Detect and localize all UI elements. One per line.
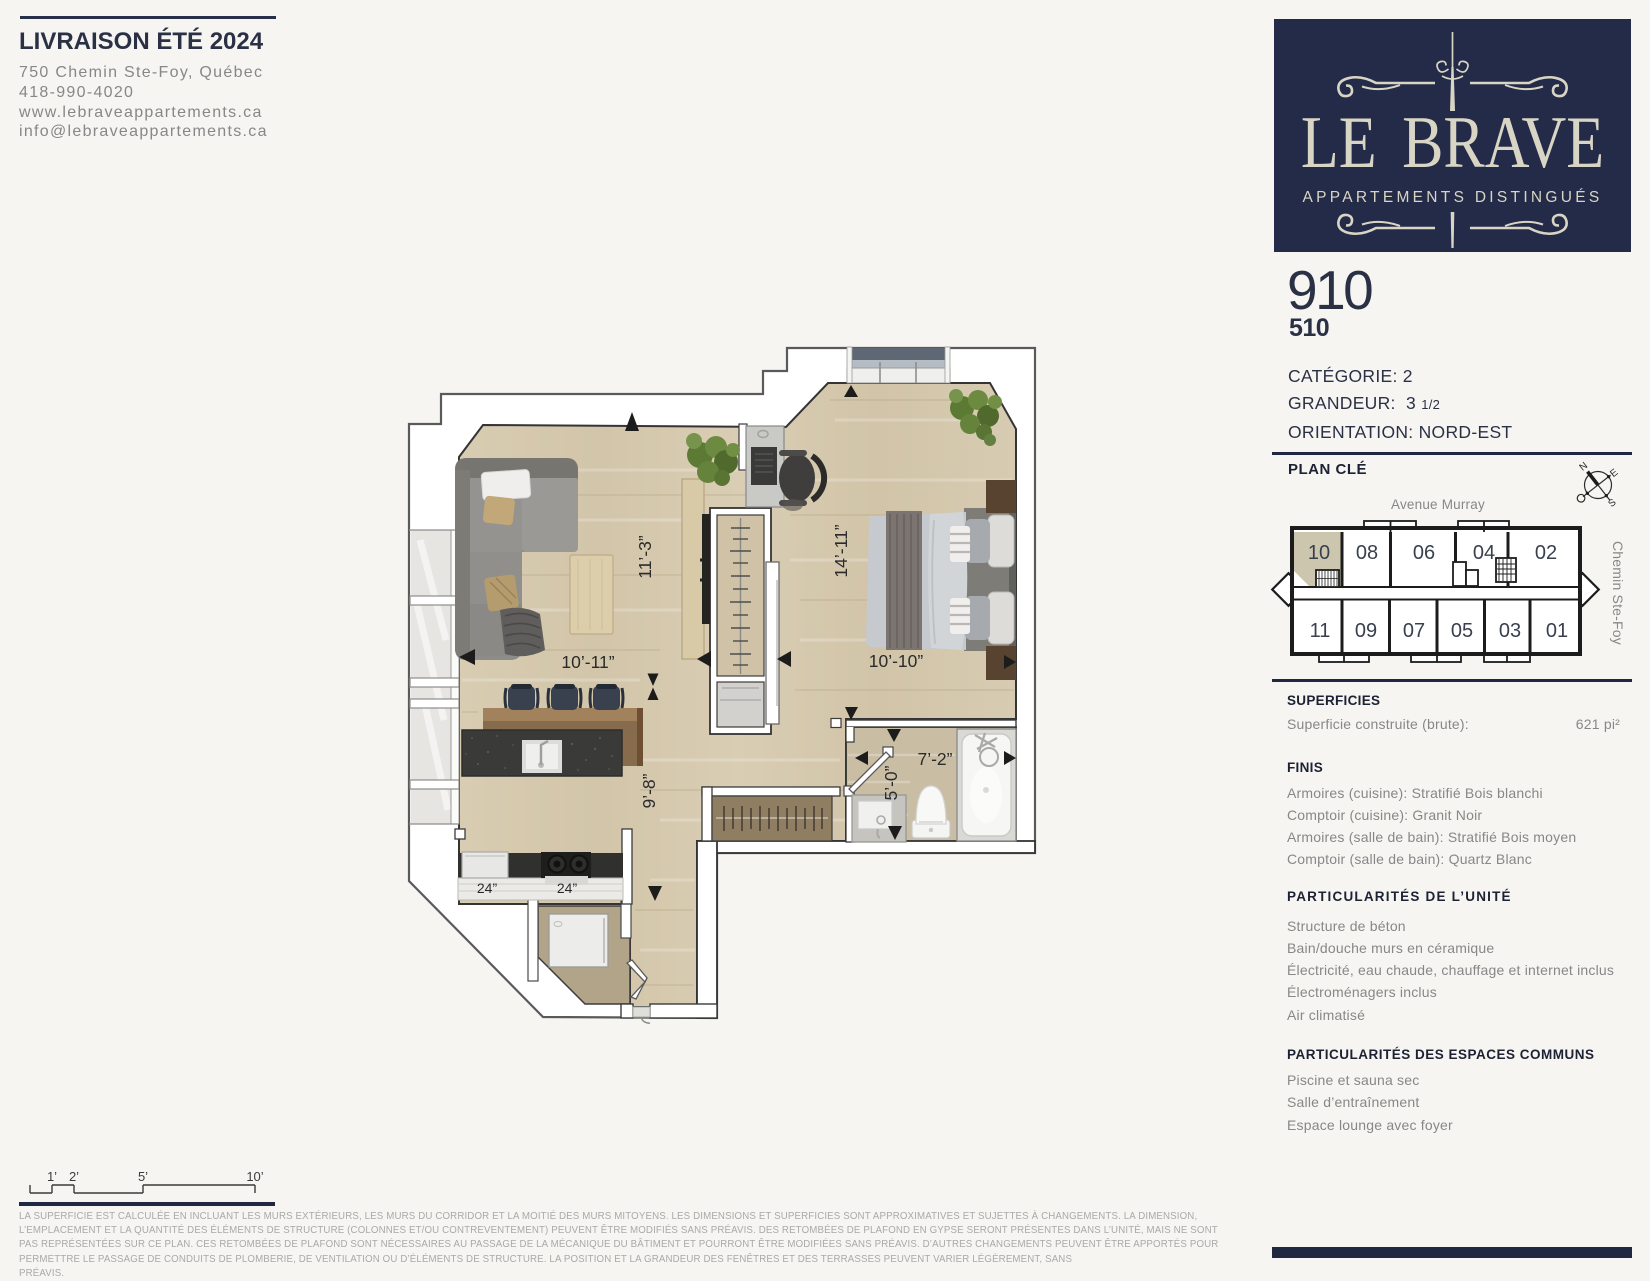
svg-text:7’-2”: 7’-2” <box>917 749 952 769</box>
svg-text:07: 07 <box>1403 620 1425 642</box>
svg-text:11: 11 <box>1310 620 1331 642</box>
svg-text:02: 02 <box>1535 542 1557 564</box>
svg-text:24”: 24” <box>557 880 578 896</box>
svg-text:E: E <box>1608 467 1620 480</box>
svg-text:01: 01 <box>1546 620 1568 642</box>
svg-text:S: S <box>1606 497 1618 510</box>
svg-text:06: 06 <box>1413 542 1435 564</box>
svg-text:10: 10 <box>1308 542 1330 564</box>
svg-text:03: 03 <box>1499 620 1521 642</box>
svg-text:10’-11”: 10’-11” <box>561 652 614 672</box>
svg-text:5’-0”: 5’-0” <box>881 765 901 800</box>
svg-text:05: 05 <box>1451 620 1473 642</box>
svg-text:9’-8”: 9’-8” <box>639 773 659 808</box>
svg-text:2’: 2’ <box>69 1169 79 1184</box>
svg-text:10’-10”: 10’-10” <box>869 651 924 671</box>
svg-text:24”: 24” <box>477 880 498 896</box>
svg-text:10’: 10’ <box>246 1169 263 1184</box>
svg-text:08: 08 <box>1356 542 1378 564</box>
svg-text:1’: 1’ <box>47 1169 57 1184</box>
svg-text:04: 04 <box>1473 542 1495 564</box>
svg-text:APPARTEMENTS DISTINGUÉS: APPARTEMENTS DISTINGUÉS <box>1302 189 1602 206</box>
svg-text:09: 09 <box>1355 620 1377 642</box>
svg-text:14’-11”: 14’-11” <box>831 524 851 577</box>
svg-text:LE BRAVE: LE BRAVE <box>1301 101 1604 183</box>
svg-text:5’: 5’ <box>138 1169 148 1184</box>
svg-text:11’-3”: 11’-3” <box>635 535 655 579</box>
